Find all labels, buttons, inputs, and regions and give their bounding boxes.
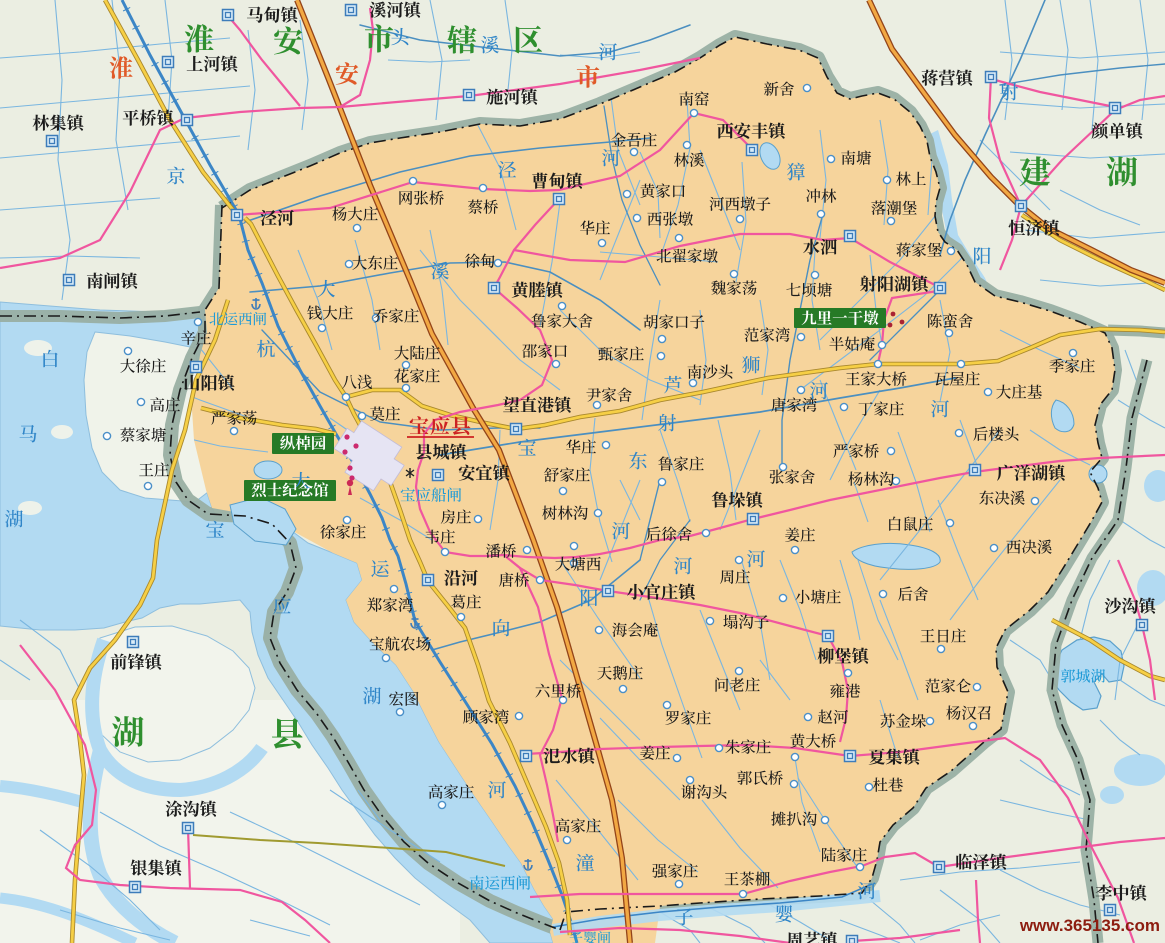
svg-text:www.365135.com: www.365135.com [1019, 916, 1160, 935]
